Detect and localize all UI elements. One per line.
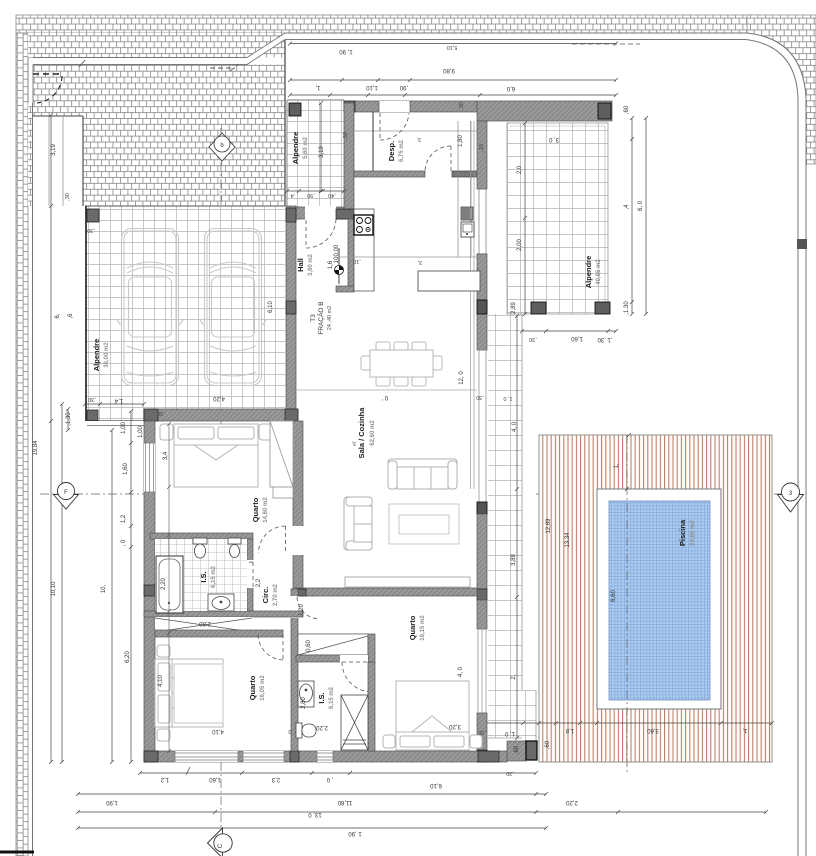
svg-text:1,2: 1,2 bbox=[160, 776, 169, 782]
svg-text:3, 0: 3, 0 bbox=[548, 136, 559, 142]
svg-text:1,00: 1,00 bbox=[121, 422, 127, 434]
svg-text:,90: ,90 bbox=[307, 192, 315, 198]
svg-text:,4: ,4 bbox=[291, 192, 296, 198]
svg-text:,4: ,4 bbox=[624, 204, 630, 210]
svg-text:1,10: 1,10 bbox=[366, 84, 378, 90]
svg-text:13,34: 13,34 bbox=[565, 532, 571, 548]
svg-text:,30: ,30 bbox=[506, 770, 514, 776]
svg-text:,30: ,30 bbox=[157, 410, 165, 416]
svg-text:F: F bbox=[64, 490, 68, 496]
svg-text:2,20: 2,20 bbox=[566, 799, 578, 805]
svg-text:6,60: 6,60 bbox=[611, 590, 617, 602]
svg-text:3,: 3, bbox=[416, 136, 421, 142]
svg-text:3,20: 3,20 bbox=[449, 723, 461, 729]
svg-text:2,: 2, bbox=[511, 674, 517, 679]
svg-text:2,80: 2,80 bbox=[301, 697, 307, 709]
svg-text:4, 0: 4, 0 bbox=[458, 666, 464, 677]
svg-text:6,75 m2: 6,75 m2 bbox=[399, 139, 405, 162]
svg-text:4, 0: 4, 0 bbox=[512, 421, 518, 432]
svg-text:2,20: 2,20 bbox=[316, 724, 328, 730]
svg-text:3,19: 3,19 bbox=[51, 144, 57, 156]
svg-text:1,80: 1,80 bbox=[458, 135, 464, 147]
svg-text:5,60 m2: 5,60 m2 bbox=[303, 136, 309, 159]
svg-text:19,15 m2: 19,15 m2 bbox=[420, 615, 426, 641]
svg-text:3,60: 3,60 bbox=[647, 727, 659, 733]
svg-text:13, 0: 13, 0 bbox=[308, 811, 322, 817]
svg-text:,30: ,30 bbox=[529, 336, 537, 342]
svg-text:0 ': 0 ' bbox=[382, 394, 388, 400]
svg-text:9,80: 9,80 bbox=[443, 67, 455, 73]
svg-text:2,80: 2,80 bbox=[199, 620, 211, 626]
svg-text:2,2: 2,2 bbox=[256, 578, 262, 587]
svg-text:6, 0: 6, 0 bbox=[638, 200, 644, 211]
svg-text:3,60 m2: 3,60 m2 bbox=[308, 253, 314, 276]
svg-text:,60: ,60 bbox=[545, 740, 551, 749]
svg-text:,30: ,30 bbox=[87, 227, 95, 233]
svg-text:,1.30: ,1.30 bbox=[624, 301, 630, 315]
svg-text:C: C bbox=[217, 843, 224, 848]
svg-text:,60: ,60 bbox=[514, 745, 520, 754]
svg-text:5,10: 5,10 bbox=[447, 44, 458, 50]
svg-text:1, 0: 1, 0 bbox=[504, 730, 515, 736]
svg-text:10,: 10, bbox=[101, 584, 107, 593]
svg-text:Alpendre: Alpendre bbox=[92, 339, 101, 372]
svg-text:Desp.: Desp. bbox=[387, 141, 396, 161]
svg-text:1,90: 1,90 bbox=[106, 799, 118, 805]
svg-text:I.S.: I.S. bbox=[317, 692, 326, 703]
svg-text:12,89: 12,89 bbox=[546, 518, 552, 534]
svg-text:6,0: 6,0 bbox=[506, 85, 515, 91]
svg-text:,10: ,10 bbox=[353, 258, 361, 264]
svg-text:2,70 m2: 2,70 m2 bbox=[273, 583, 279, 606]
svg-text:12, 0: 12, 0 bbox=[459, 371, 465, 385]
svg-text:2,00: 2,00 bbox=[517, 239, 523, 251]
svg-text:4,10: 4,10 bbox=[212, 728, 224, 734]
svg-text:6,15 m2: 6,15 m2 bbox=[211, 565, 217, 588]
svg-text:,30: ,30 bbox=[65, 193, 71, 201]
svg-text:3,: 3, bbox=[351, 440, 356, 446]
svg-text:0: 0 bbox=[288, 728, 291, 734]
svg-text:100.00: 100.00 bbox=[334, 244, 340, 263]
svg-text:T3: T3 bbox=[310, 314, 317, 322]
svg-text:3,: 3, bbox=[417, 259, 422, 265]
svg-text:, 0: , 0 bbox=[326, 776, 333, 782]
svg-text:6,: 6, bbox=[55, 313, 61, 318]
svg-text:,6: ,6 bbox=[68, 313, 74, 319]
svg-text:Sala / Cozinha: Sala / Cozinha bbox=[357, 407, 366, 459]
svg-text:,90: ,90 bbox=[399, 84, 408, 90]
svg-text:,1 ,30: ,1 ,30 bbox=[597, 336, 613, 342]
svg-text:FRAÇÃO B: FRAÇÃO B bbox=[316, 301, 325, 334]
svg-text:10,10: 10,10 bbox=[51, 581, 57, 597]
svg-text:2,20: 2,20 bbox=[161, 578, 167, 590]
svg-text:62,60 m2: 62,60 m2 bbox=[370, 420, 376, 446]
svg-text:4,10: 4,10 bbox=[158, 675, 164, 687]
svg-text:2,3: 2,3 bbox=[271, 776, 280, 782]
svg-text:6,10: 6,10 bbox=[430, 782, 442, 788]
svg-text:3,19: 3,19 bbox=[319, 146, 325, 158]
svg-text:1,: 1, bbox=[315, 84, 320, 90]
svg-text:,30: ,30 bbox=[88, 396, 96, 402]
svg-text:,30: ,30 bbox=[459, 102, 465, 110]
svg-text:Hall: Hall bbox=[296, 258, 305, 272]
svg-text:1,8: 1,8 bbox=[565, 727, 574, 733]
svg-text:,60: ,60 bbox=[624, 105, 630, 114]
svg-text:2,89: 2,89 bbox=[511, 302, 517, 314]
svg-text:1, 90: 1, 90 bbox=[339, 48, 353, 54]
svg-text:4,20: 4,20 bbox=[213, 395, 225, 401]
svg-text:,30: ,30 bbox=[478, 729, 486, 735]
svg-text:Alpendre: Alpendre bbox=[291, 132, 300, 165]
svg-text:,10: ,10 bbox=[479, 144, 485, 152]
svg-text:Quarto: Quarto bbox=[408, 615, 417, 640]
svg-text:,30: ,30 bbox=[343, 132, 349, 140]
svg-text:2,0: 2,0 bbox=[517, 165, 523, 174]
svg-text:, 0: , 0 bbox=[121, 539, 127, 546]
svg-text:3,4: 3,4 bbox=[163, 451, 169, 460]
svg-text:1,20: 1,20 bbox=[299, 604, 305, 616]
svg-text:Piscina: Piscina bbox=[678, 519, 687, 546]
svg-text:,1,30: ,1,30 bbox=[66, 412, 72, 426]
svg-text:6,20: 6,20 bbox=[125, 651, 131, 663]
svg-text:16,05 m2: 16,05 m2 bbox=[260, 675, 266, 701]
svg-text:19,84: 19,84 bbox=[33, 440, 39, 456]
svg-text:,40: ,40 bbox=[328, 192, 336, 198]
svg-text:,30: ,30 bbox=[476, 394, 484, 400]
svg-text:1,60: 1,60 bbox=[571, 335, 583, 341]
svg-text:6,10: 6,10 bbox=[268, 301, 274, 313]
svg-text:Alpendre: Alpendre bbox=[584, 256, 593, 289]
svg-text:40,95 m2: 40,95 m2 bbox=[596, 259, 602, 285]
svg-text:14,60 m2: 14,60 m2 bbox=[263, 497, 269, 523]
svg-text:Quarto: Quarto bbox=[248, 675, 257, 700]
svg-text:1,4: 1,4 bbox=[114, 397, 123, 403]
svg-text:Circ.: Circ. bbox=[261, 587, 270, 604]
svg-text:23,80 m2: 23,80 m2 bbox=[690, 520, 696, 546]
svg-text:3,88: 3,88 bbox=[511, 554, 517, 566]
svg-text:38,00 m2: 38,00 m2 bbox=[104, 342, 110, 368]
svg-text:6,15 m2: 6,15 m2 bbox=[329, 686, 335, 709]
svg-text:1,: 1, bbox=[614, 463, 620, 468]
svg-text:Quarto: Quarto bbox=[251, 497, 260, 522]
svg-text:1,00: 1,00 bbox=[138, 426, 144, 438]
svg-text:1,60: 1,60 bbox=[123, 463, 129, 475]
svg-text:1,2: 1,2 bbox=[121, 514, 127, 523]
svg-text:1, 0: 1, 0 bbox=[503, 395, 512, 401]
svg-text:1 ,90: 1 ,90 bbox=[348, 830, 362, 836]
svg-text:24 ,40 m2: 24 ,40 m2 bbox=[327, 306, 333, 330]
svg-text:1,60: 1,60 bbox=[209, 776, 221, 782]
svg-text:0,60: 0,60 bbox=[306, 640, 312, 652]
svg-text:1,: 1, bbox=[742, 727, 747, 733]
svg-text:I.S.: I.S. bbox=[199, 571, 208, 582]
svg-text:11,80: 11,80 bbox=[337, 799, 352, 805]
